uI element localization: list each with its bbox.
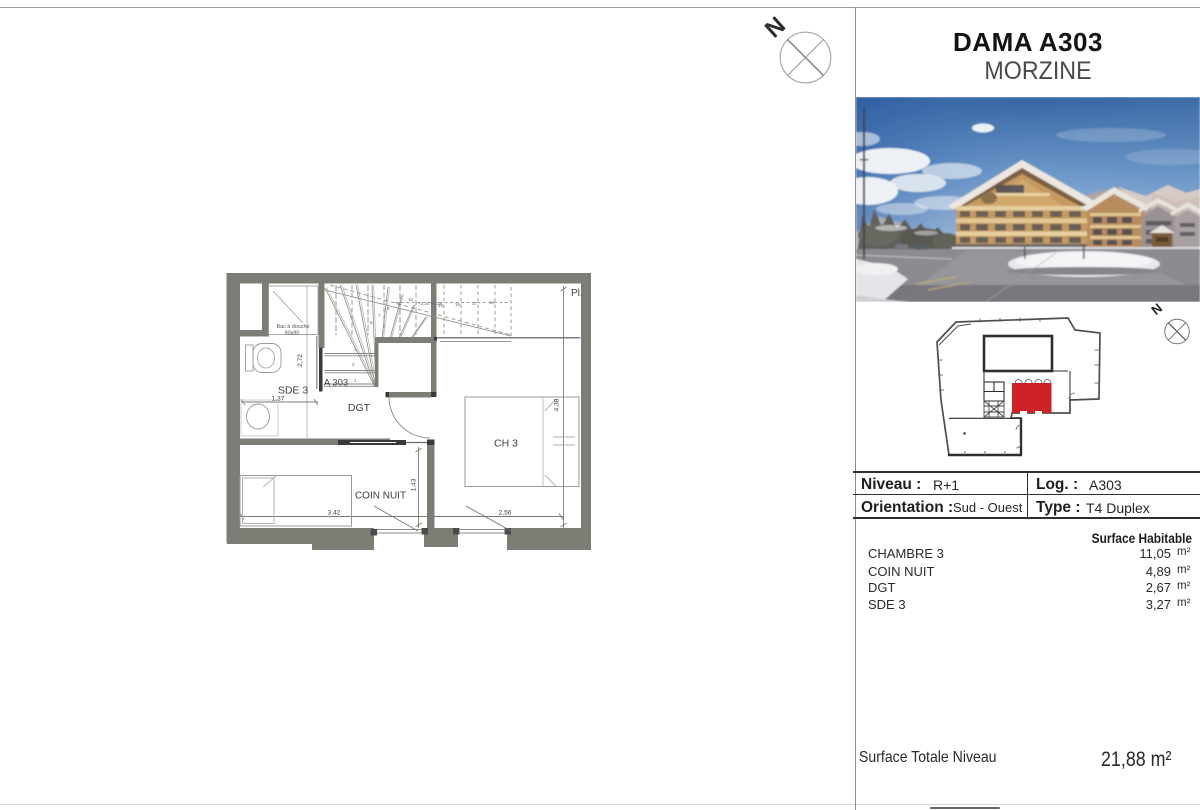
svg-text:16: 16 <box>455 302 461 307</box>
svg-text:15: 15 <box>438 303 444 308</box>
svg-text:2: 2 <box>352 362 355 367</box>
svg-text:4,38: 4,38 <box>554 398 561 411</box>
svg-text:8: 8 <box>387 306 390 311</box>
svg-text:6: 6 <box>370 320 373 325</box>
svg-text:A 303: A 303 <box>324 378 348 389</box>
svg-text:7: 7 <box>378 313 381 318</box>
svg-text:2,56: 2,56 <box>499 510 512 517</box>
svg-text:CH 3: CH 3 <box>494 438 518 450</box>
svg-text:1,37: 1,37 <box>272 396 285 403</box>
svg-text:COIN NUIT: COIN NUIT <box>355 491 406 502</box>
svg-text:N: N <box>760 12 791 44</box>
svg-text:N: N <box>1150 300 1165 318</box>
svg-text:1,43: 1,43 <box>411 478 418 491</box>
svg-text:Pl.: Pl. <box>571 288 583 299</box>
svg-text:2,72: 2,72 <box>297 354 304 367</box>
svg-text:3,42: 3,42 <box>328 510 341 517</box>
svg-text:DGT: DGT <box>348 402 371 414</box>
svg-text:18: 18 <box>489 300 495 305</box>
svg-text:90x80: 90x80 <box>285 331 300 337</box>
svg-text:Bac à douche: Bac à douche <box>277 324 310 330</box>
svg-text:17: 17 <box>472 301 478 306</box>
svg-text:10: 10 <box>408 297 414 302</box>
svg-text:1: 1 <box>354 378 357 383</box>
